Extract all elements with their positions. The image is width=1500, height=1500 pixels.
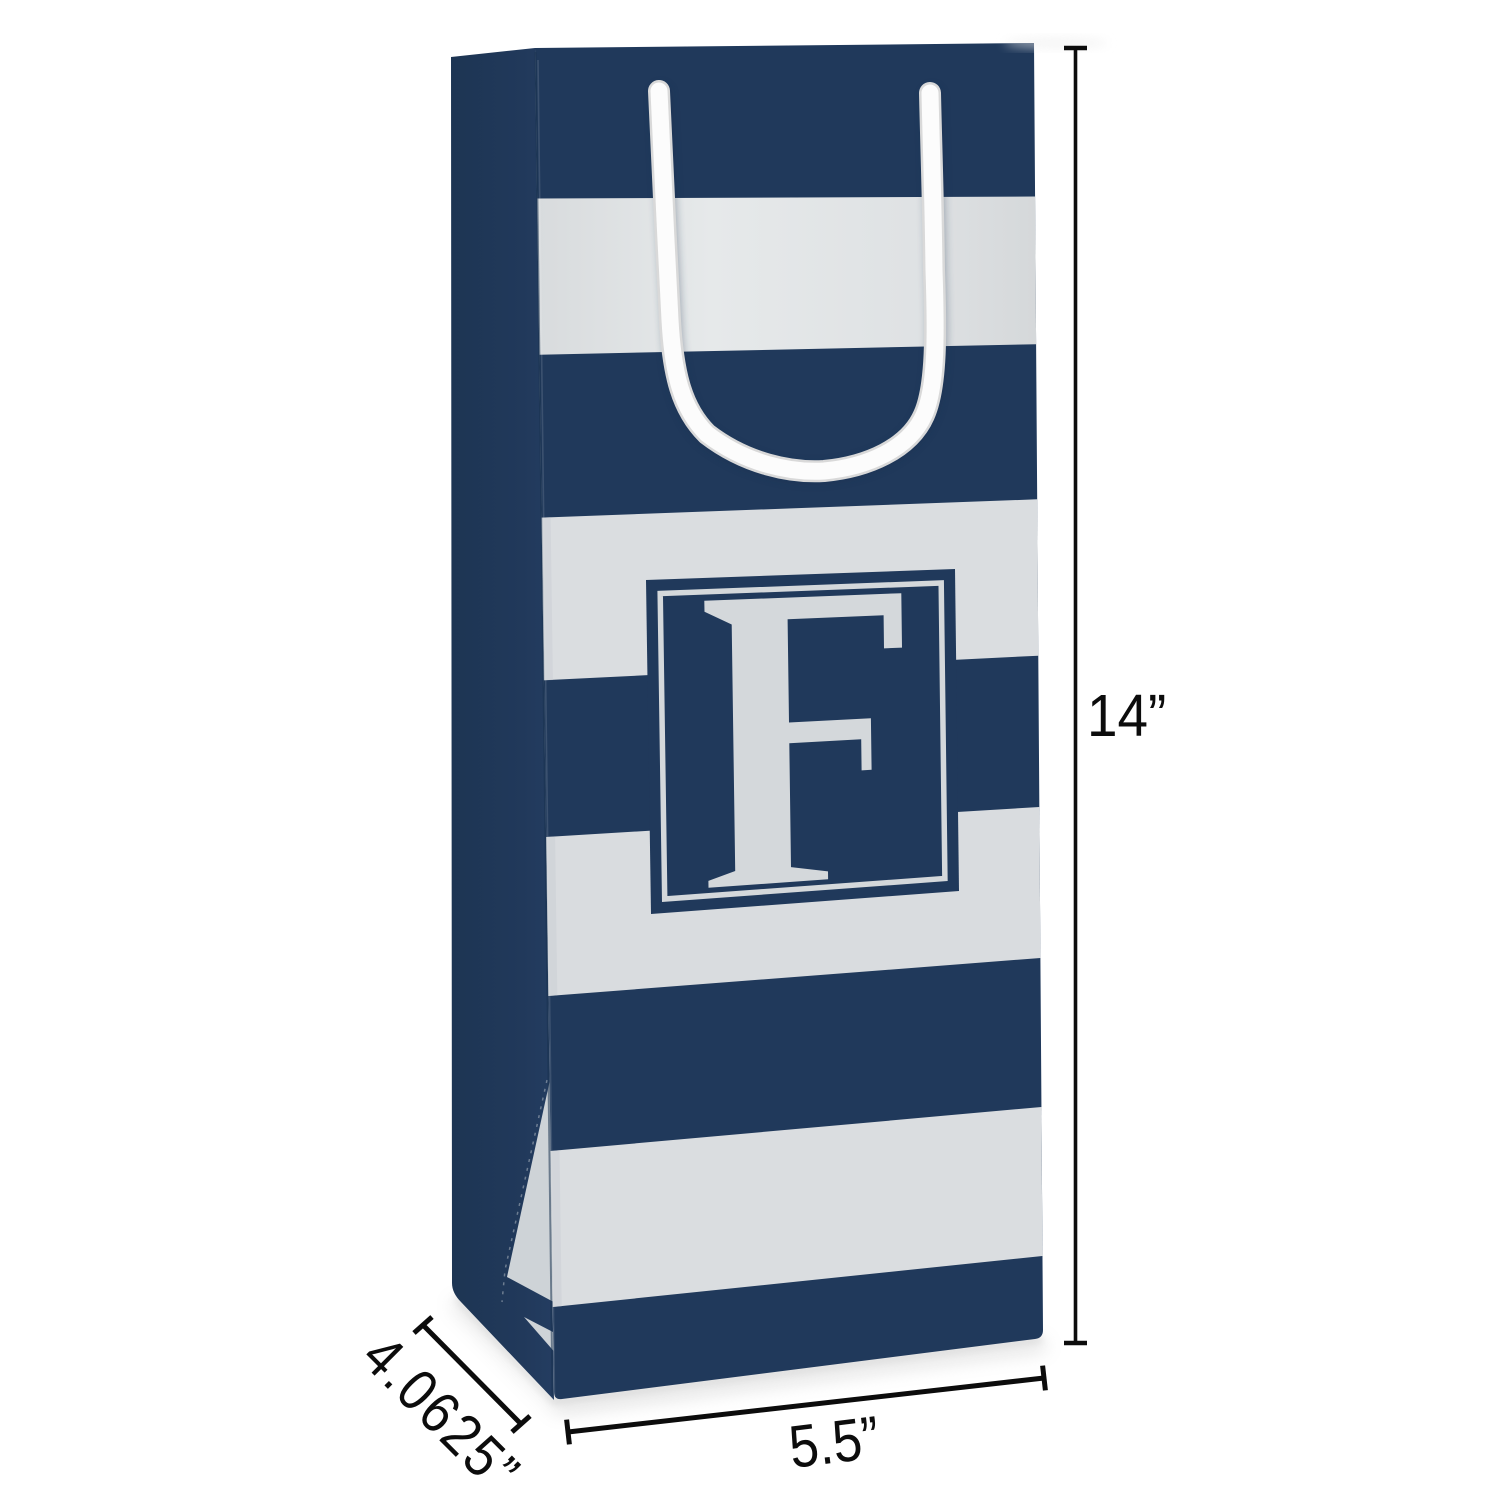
svg-text:5.5”: 5.5” <box>785 1403 882 1481</box>
svg-text:14”: 14” <box>1087 683 1166 749</box>
